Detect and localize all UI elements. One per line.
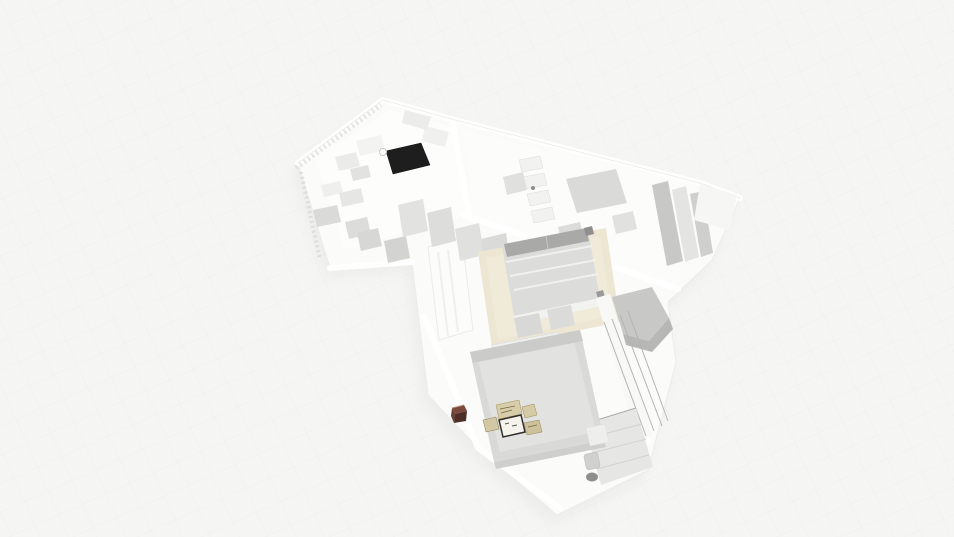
closet-box-2[interactable] <box>427 207 456 247</box>
frame-5[interactable] <box>524 420 542 435</box>
toilet[interactable] <box>583 452 600 482</box>
plant-pot-brown[interactable] <box>451 405 467 423</box>
closet-box-1[interactable] <box>398 199 428 237</box>
design-canvas[interactable] <box>0 0 954 537</box>
kitchen-sink[interactable] <box>380 149 387 156</box>
frame-1[interactable] <box>483 417 499 432</box>
floorplan-3d-viewport[interactable] <box>0 0 954 537</box>
bedside-table[interactable] <box>586 424 609 446</box>
fixture-dot <box>531 186 535 190</box>
